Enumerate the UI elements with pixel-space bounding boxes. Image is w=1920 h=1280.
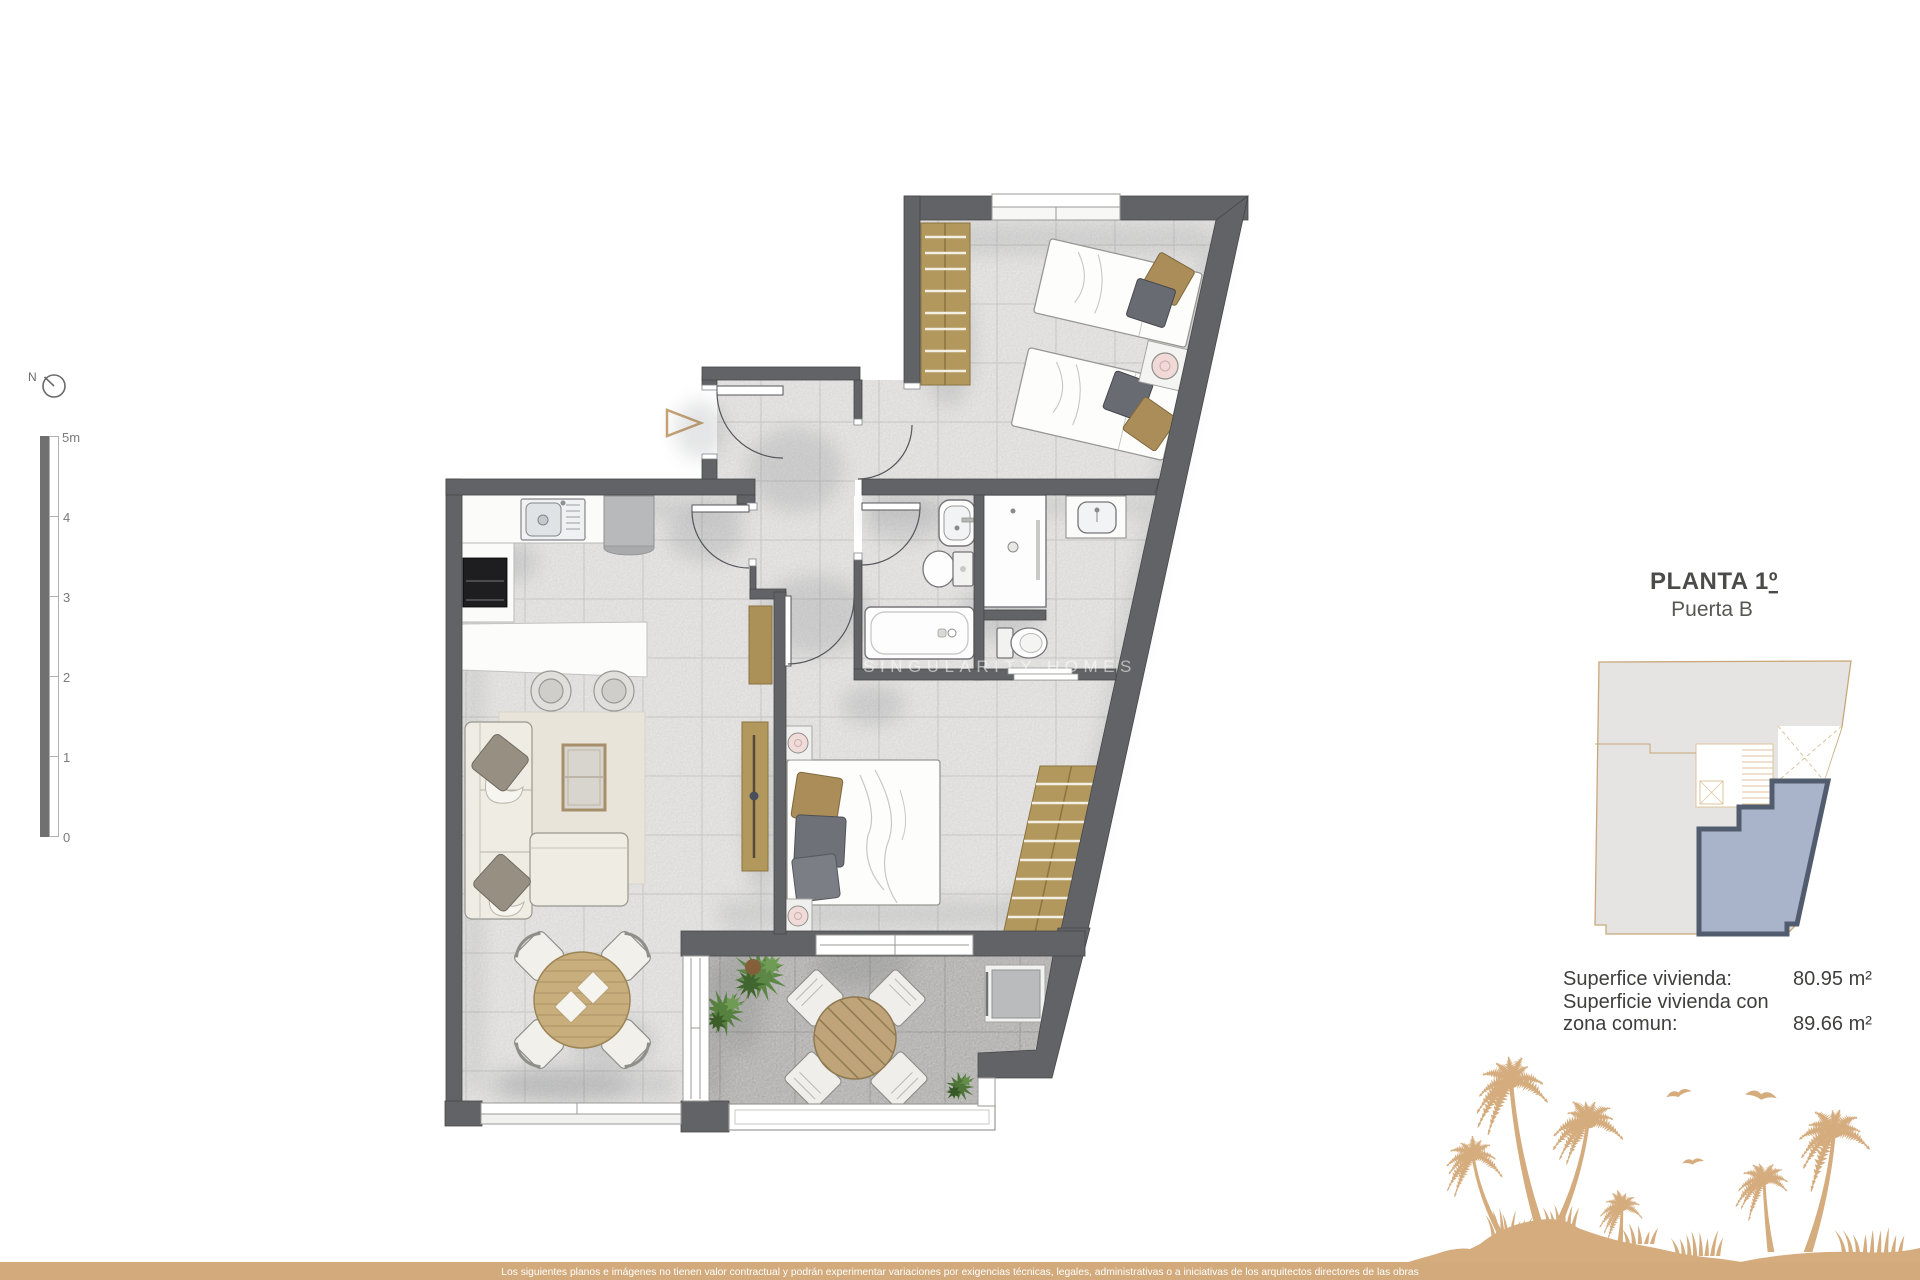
svg-text:0: 0 [63,830,70,845]
svg-text:89.66 m²: 89.66 m² [1793,1013,1872,1035]
svg-text:1: 1 [63,750,70,765]
svg-text:3: 3 [63,590,70,605]
svg-text:5m: 5m [62,430,80,445]
svg-text:4: 4 [63,510,70,525]
svg-text:Superficie vivienda con: Superficie vivienda con [1563,991,1769,1013]
svg-text:PLANTA 1º: PLANTA 1º [1650,568,1778,595]
svg-text:N: N [28,370,37,384]
svg-text:Superfice vivienda:: Superfice vivienda: [1563,968,1732,990]
svg-text:Los siguientes planos e imágen: Los siguientes planos e imágenes no tien… [501,1267,1419,1278]
svg-text:SINGULARITY HOMES: SINGULARITY HOMES [863,657,1137,676]
svg-text:zona comun:: zona comun: [1563,1013,1678,1035]
svg-text:2: 2 [63,670,70,685]
svg-text:80.95 m²: 80.95 m² [1793,968,1872,990]
svg-text:Puerta B: Puerta B [1671,598,1753,621]
